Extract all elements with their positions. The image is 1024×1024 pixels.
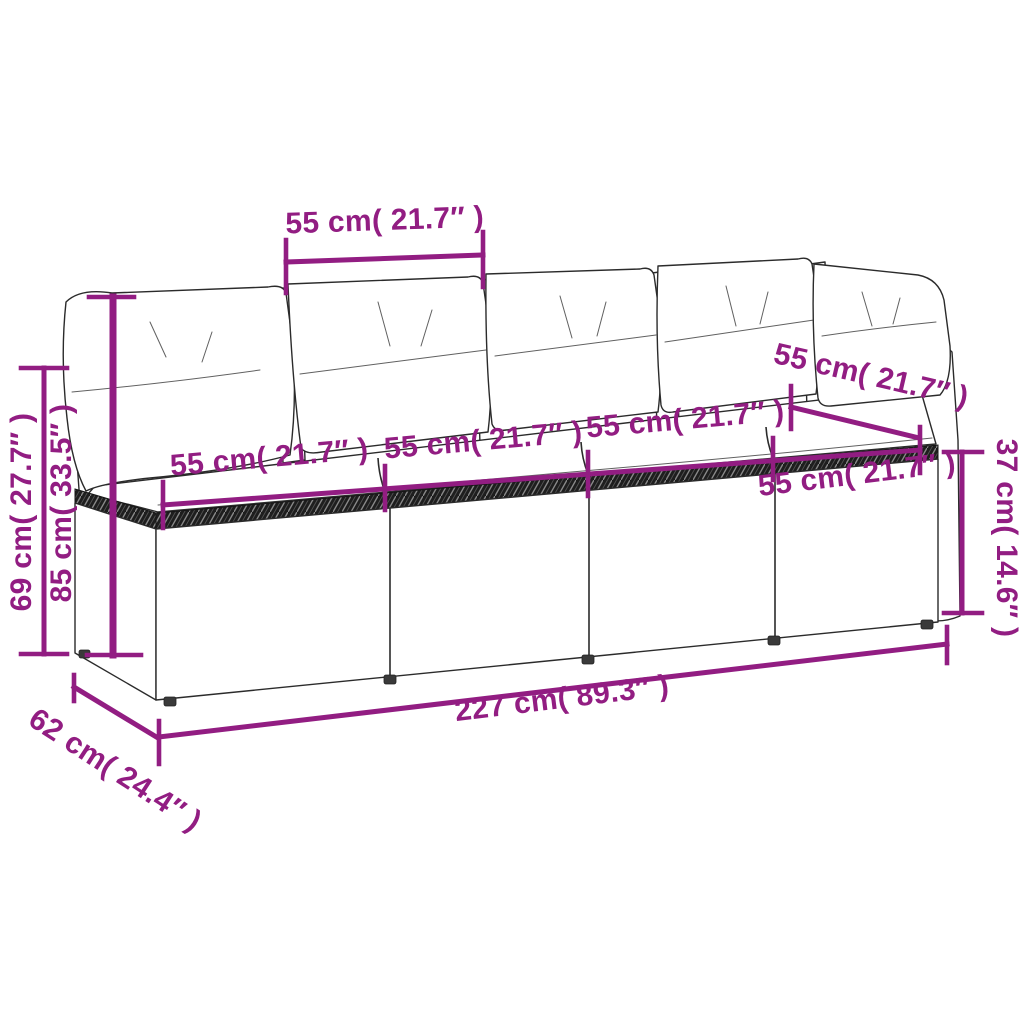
sofa-dimension-figure: 55 cm( 21.7″ ) 69 cm( 27.7″ ) 85 cm( 33.… (0, 0, 1024, 1024)
sofa-foot (921, 620, 933, 629)
dim-227-label: 227 cm( 89.3″ ) (453, 669, 671, 728)
dim-69-label: 69 cm( 27.7″ ) (5, 413, 38, 612)
dim-85-label: 85 cm( 33.5″ ) (45, 404, 78, 603)
dim-62-label: 62 cm( 24.4″ ) (23, 702, 208, 838)
dim-depth: 62 cm( 24.4″ ) (23, 675, 208, 838)
dim-top-label: 55 cm( 21.7″ ) (285, 201, 485, 241)
sofa-foot (164, 697, 176, 706)
dim-top-line (286, 255, 483, 262)
sofa-foot (384, 675, 396, 684)
sofa-foot (582, 655, 594, 664)
back-cushion-3 (486, 268, 661, 430)
sofa-foot (768, 636, 780, 645)
dim-37-label: 37 cm( 14.6″ ) (990, 439, 1023, 638)
dimension-diagram-canvas: 55 cm( 21.7″ ) 69 cm( 27.7″ ) 85 cm( 33.… (0, 0, 1024, 1024)
back-cushion-4 (657, 258, 819, 412)
